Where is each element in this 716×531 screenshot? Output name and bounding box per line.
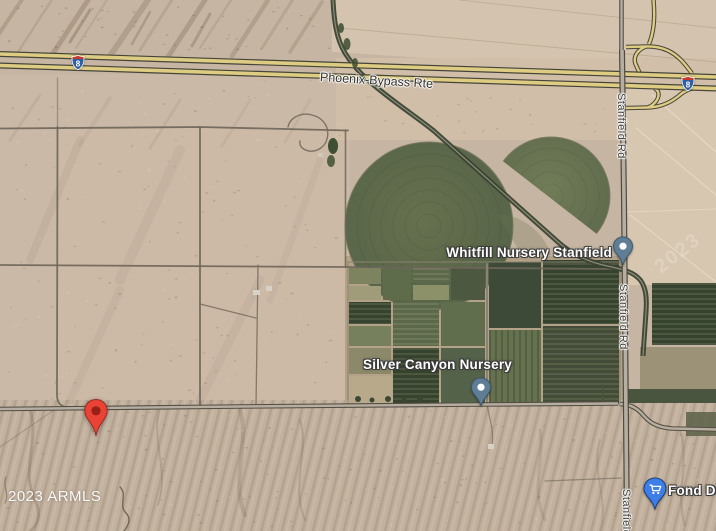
interstate-8-shield-icon: 8 <box>71 54 85 71</box>
place-pin-icon[interactable] <box>612 236 634 266</box>
shopping-pin-icon[interactable] <box>642 477 668 511</box>
place-pin-icon[interactable] <box>470 377 492 407</box>
interstate-8-shield-icon: 8 <box>681 75 695 92</box>
poi-label-fond-du: Fond Du <box>668 483 716 498</box>
stanfield-rd-label: Stanfield Rd <box>615 93 627 159</box>
poi-label-silver-canyon-nursery: Silver Canyon Nursery <box>363 357 512 372</box>
red-location-marker-icon[interactable] <box>83 398 109 438</box>
poi-label-whitfill-nursery: Whitfill Nursery Stanfield <box>446 245 612 260</box>
stanfield-rd-label: Stanfield Rd <box>620 489 632 531</box>
satellite-map[interactable]: Phoenix-Bypass Rte 8 8 Stanfield Rd Stan… <box>0 0 716 531</box>
shield-number: 8 <box>686 80 691 89</box>
attribution-watermark: 2023 ARMLS <box>8 488 101 505</box>
shield-number: 8 <box>76 59 81 68</box>
stanfield-rd-label: Stanfield Rd <box>617 284 629 350</box>
